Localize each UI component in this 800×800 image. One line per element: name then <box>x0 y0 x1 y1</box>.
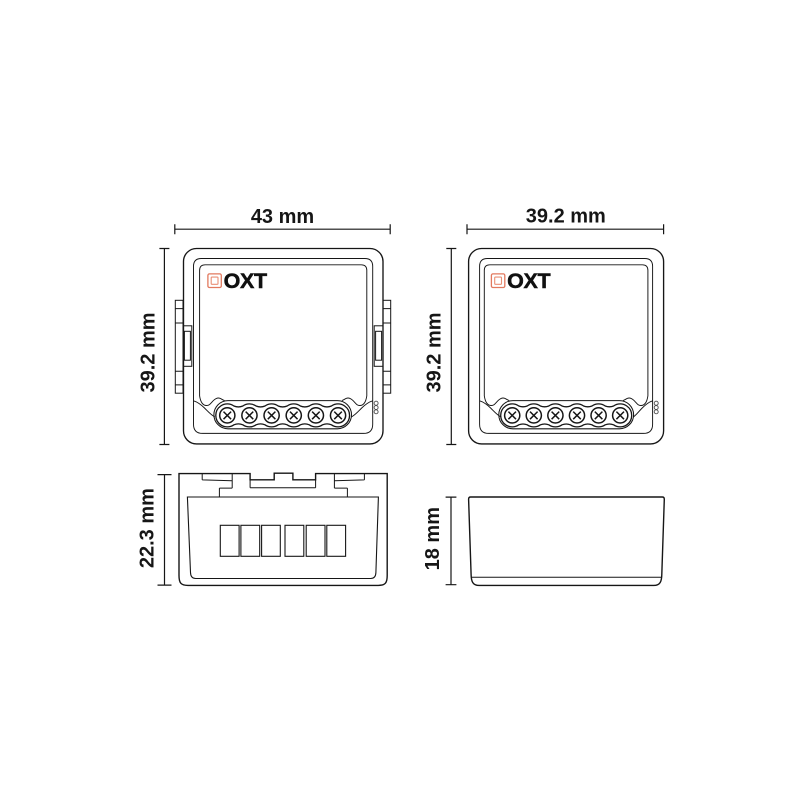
svg-text:39.2 mm: 39.2 mm <box>138 312 160 392</box>
svg-text:OXT: OXT <box>224 269 267 293</box>
svg-text:39.2 mm: 39.2 mm <box>526 205 606 227</box>
svg-text:22.3 mm: 22.3 mm <box>136 488 158 568</box>
svg-text:39.2 mm: 39.2 mm <box>424 312 446 392</box>
svg-text:43 mm: 43 mm <box>251 206 314 228</box>
svg-text:18 mm: 18 mm <box>422 507 444 570</box>
svg-text:OXT: OXT <box>507 269 550 293</box>
